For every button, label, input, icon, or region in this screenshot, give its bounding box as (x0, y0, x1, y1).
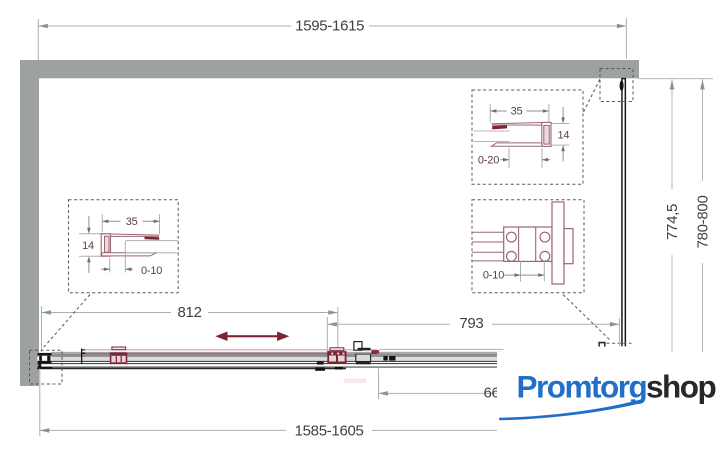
svg-text:1595-1615: 1595-1615 (295, 17, 364, 34)
svg-text:1585-1605: 1585-1605 (295, 422, 364, 439)
svg-text:774,5: 774,5 (664, 204, 681, 240)
svg-text:812: 812 (178, 304, 202, 321)
svg-text:shop: shop (646, 369, 716, 405)
svg-text:35: 35 (511, 105, 523, 117)
svg-text:0-10: 0-10 (141, 265, 162, 277)
svg-text:0-20: 0-20 (478, 154, 499, 166)
svg-text:0-10: 0-10 (483, 270, 504, 282)
svg-text:Promtorg: Promtorg (517, 369, 647, 405)
svg-text:14: 14 (557, 130, 569, 142)
svg-text:35: 35 (126, 216, 138, 228)
svg-text:780-800: 780-800 (695, 196, 712, 249)
svg-text:14: 14 (82, 240, 94, 252)
svg-text:793: 793 (459, 315, 483, 332)
